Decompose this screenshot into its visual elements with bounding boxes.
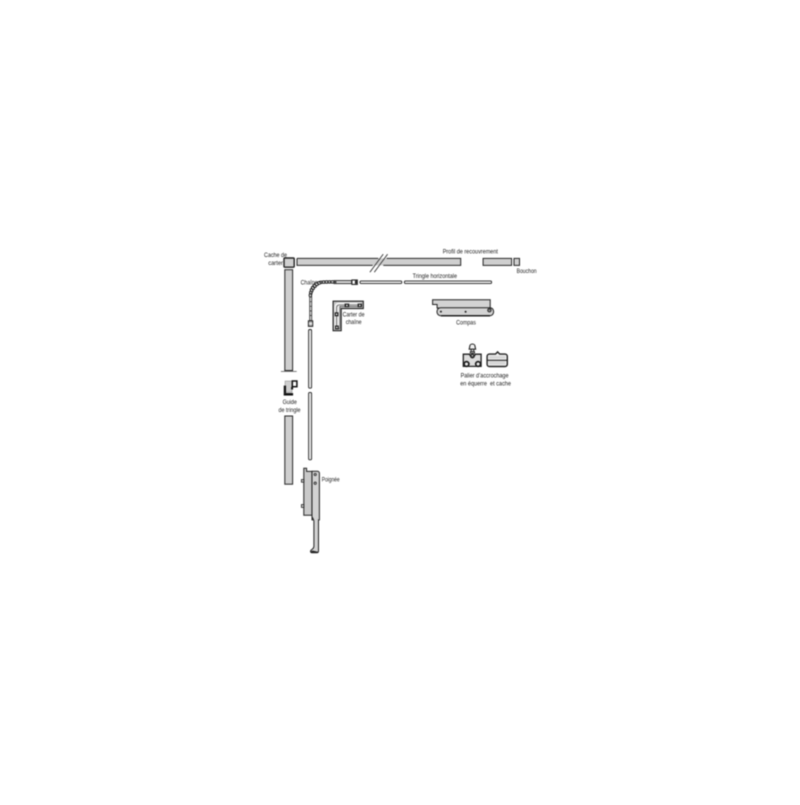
svg-text:carter: carter [268,260,284,267]
svg-text:Guide: Guide [283,399,298,406]
svg-text:Compas: Compas [456,319,476,326]
svg-text:Bouchon: Bouchon [517,268,537,275]
svg-text:Profil de recouvrement: Profil de recouvrement [443,249,498,256]
svg-text:Tringle horizontale: Tringle horizontale [413,273,458,280]
svg-text:en équerre et cache: en équerre et cache [460,380,511,387]
svg-text:chaîne: chaîne [346,319,362,326]
svg-text:Palier d’accrochage: Palier d’accrochage [461,372,509,379]
svg-text:Poignée: Poignée [322,477,340,484]
svg-text:Carter de: Carter de [343,312,365,319]
svg-text:de tringle: de tringle [279,407,301,414]
